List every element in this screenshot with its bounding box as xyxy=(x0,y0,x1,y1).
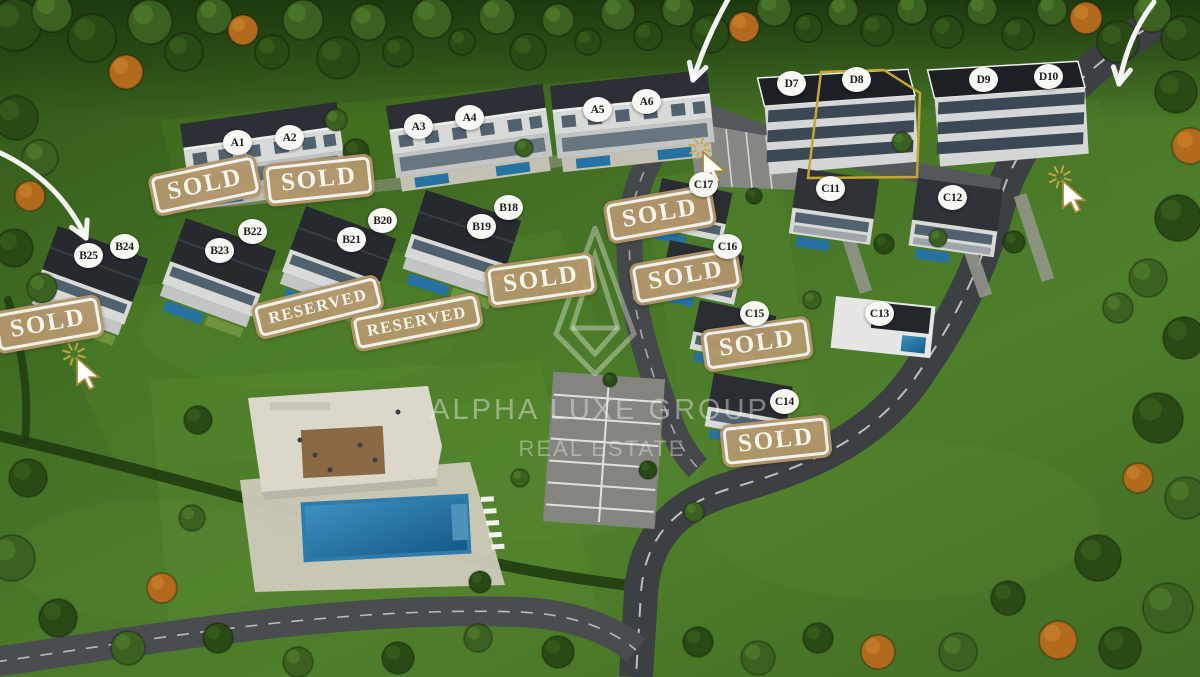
status-badge-sold-3: SOLD xyxy=(484,251,599,309)
unit-marker-b25[interactable]: B25 xyxy=(74,243,103,268)
status-badge-label: SOLD xyxy=(703,319,811,370)
unit-overlay: A1A2A3A4A5A6B18B19B20B21B22B23B24B25C11C… xyxy=(0,0,1200,677)
status-badge-label: SOLD xyxy=(265,156,372,203)
unit-marker-b24[interactable]: B24 xyxy=(110,234,139,259)
unit-marker-b19[interactable]: B19 xyxy=(467,214,496,239)
status-badge-label: SOLD xyxy=(0,297,102,351)
unit-marker-b18[interactable]: B18 xyxy=(494,195,523,220)
status-badge-label: SOLD xyxy=(150,156,259,214)
unit-marker-d8[interactable]: D8 xyxy=(842,67,871,92)
status-badge-sold-6: SOLD xyxy=(0,293,106,354)
unit-marker-c14[interactable]: C14 xyxy=(770,389,799,414)
unit-marker-c17[interactable]: C17 xyxy=(689,172,718,197)
unit-marker-c13[interactable]: C13 xyxy=(865,301,894,326)
unit-marker-a3[interactable]: A3 xyxy=(404,114,433,139)
unit-marker-b20[interactable]: B20 xyxy=(368,208,397,233)
unit-marker-d10[interactable]: D10 xyxy=(1034,64,1063,89)
unit-marker-a1[interactable]: A1 xyxy=(223,130,252,155)
unit-marker-c12[interactable]: C12 xyxy=(938,185,967,210)
unit-marker-d9[interactable]: D9 xyxy=(969,67,998,92)
unit-marker-a2[interactable]: A2 xyxy=(275,125,304,150)
unit-marker-b23[interactable]: B23 xyxy=(205,238,234,263)
status-badge-label: SOLD xyxy=(487,255,595,306)
status-badge-sold-10: SOLD xyxy=(719,414,833,468)
status-badge-sold-2: SOLD xyxy=(262,153,376,207)
unit-marker-d7[interactable]: D7 xyxy=(777,71,806,96)
unit-marker-c16[interactable]: C16 xyxy=(713,234,742,259)
unit-marker-a6[interactable]: A6 xyxy=(632,89,661,114)
site-plan-rendering: ALPHA LUXE GROUP REAL ESTATE A1A2A3A4A5A… xyxy=(0,0,1200,677)
unit-marker-a5[interactable]: A5 xyxy=(583,97,612,122)
unit-marker-c11[interactable]: C11 xyxy=(816,176,845,201)
status-badge-sold-1: SOLD xyxy=(147,153,264,218)
unit-marker-b22[interactable]: B22 xyxy=(238,219,267,244)
unit-marker-b21[interactable]: B21 xyxy=(337,227,366,252)
unit-marker-a4[interactable]: A4 xyxy=(455,105,484,130)
unit-marker-c15[interactable]: C15 xyxy=(740,301,769,326)
status-badge-label: SOLD xyxy=(722,417,829,464)
